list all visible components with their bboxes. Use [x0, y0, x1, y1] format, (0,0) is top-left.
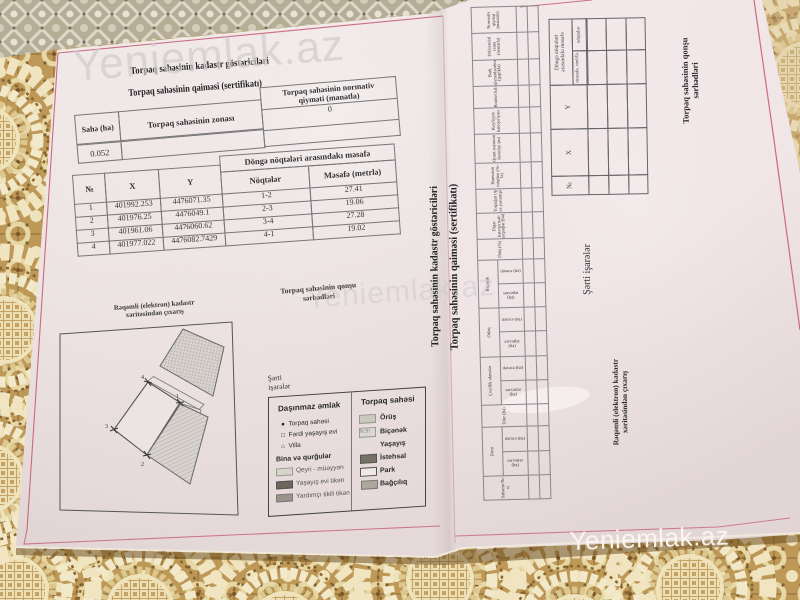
svg-text:2: 2 [141, 462, 144, 468]
svg-text:1: 1 [176, 394, 179, 400]
svg-text:3: 3 [105, 424, 108, 430]
svg-text:4: 4 [141, 375, 144, 381]
